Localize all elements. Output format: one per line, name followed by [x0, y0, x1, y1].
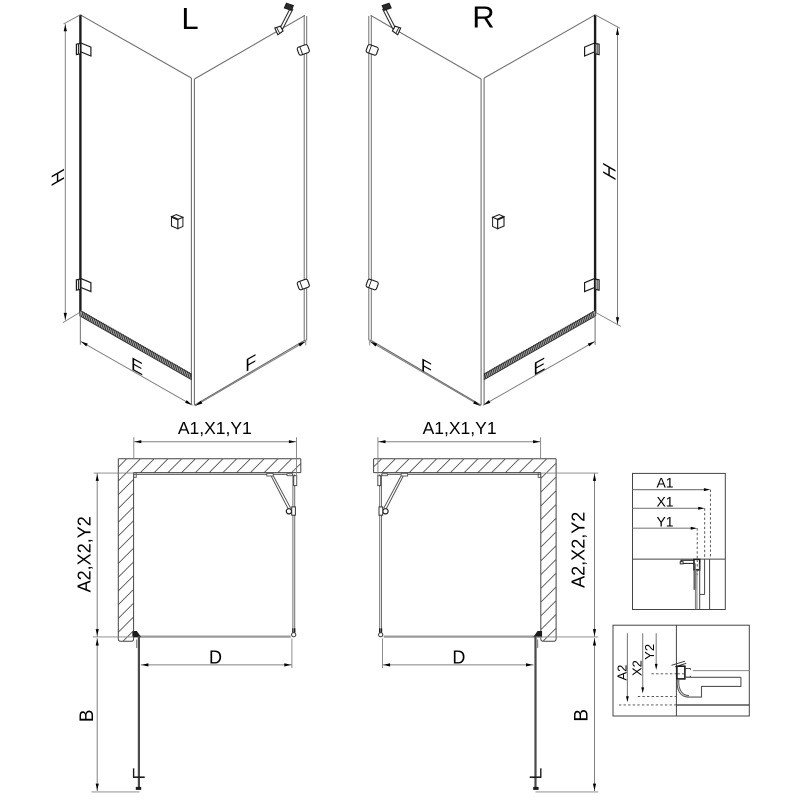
svg-text:L: L — [181, 1, 198, 36]
svg-text:D: D — [452, 648, 465, 668]
svg-text:Y1: Y1 — [656, 513, 673, 529]
svg-text:X2: X2 — [629, 660, 644, 676]
svg-text:A2,X2,Y2: A2,X2,Y2 — [568, 512, 588, 588]
svg-text:A1,X1,Y1: A1,X1,Y1 — [423, 418, 497, 438]
svg-text:A1,X1,Y1: A1,X1,Y1 — [178, 418, 252, 438]
svg-text:A1: A1 — [656, 475, 673, 491]
svg-text:B: B — [77, 709, 98, 722]
svg-text:Y2: Y2 — [642, 644, 657, 660]
svg-text:R: R — [472, 0, 494, 35]
svg-text:X1: X1 — [656, 493, 673, 509]
svg-text:A2,X2,Y2: A2,X2,Y2 — [74, 516, 94, 592]
svg-text:D: D — [209, 648, 222, 668]
svg-text:B: B — [572, 709, 593, 722]
